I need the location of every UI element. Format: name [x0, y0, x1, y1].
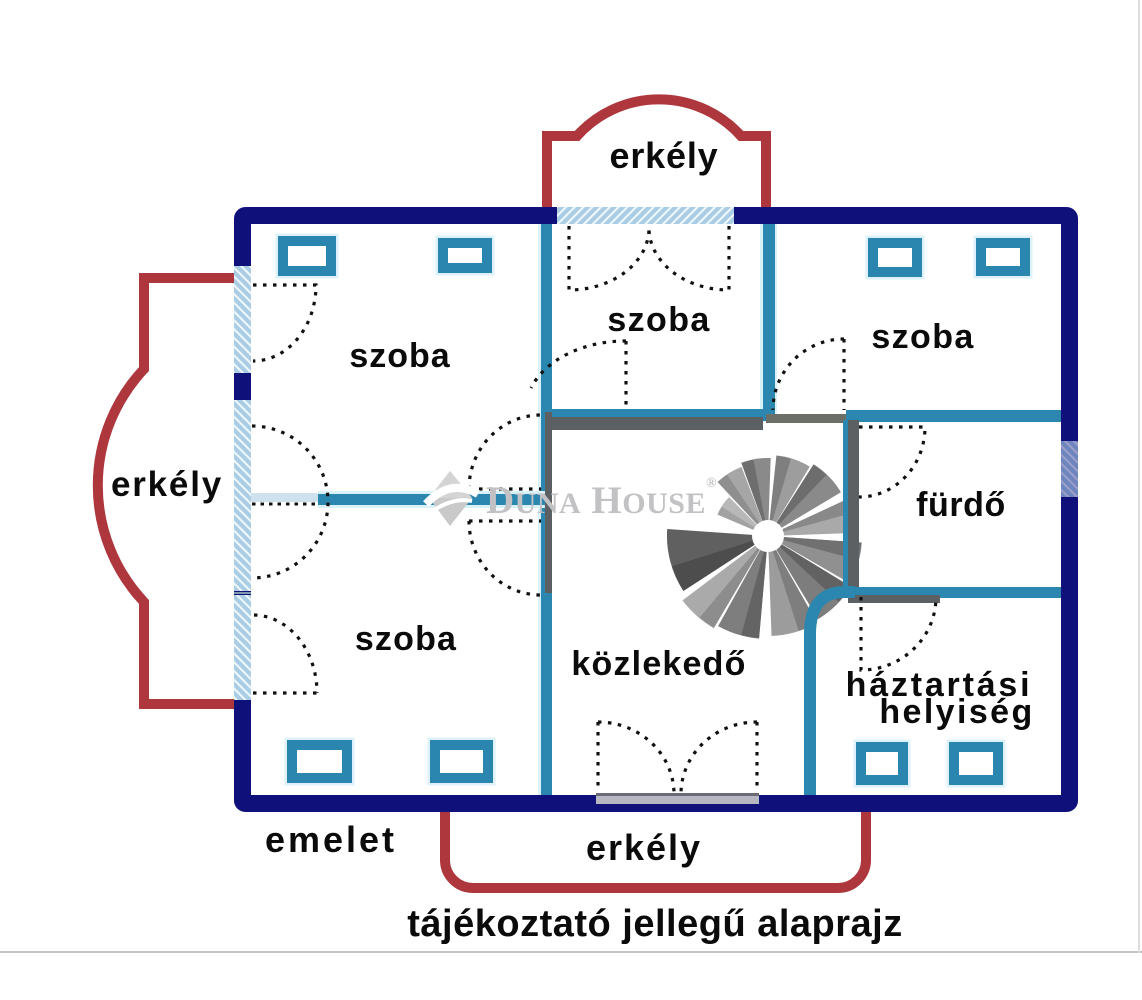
svg-text:szoba: szoba — [349, 337, 450, 375]
svg-text:közlekedő: közlekedő — [571, 645, 746, 683]
svg-text:erkély: erkély — [111, 465, 223, 504]
svg-text:szoba: szoba — [607, 301, 710, 339]
svg-text:erkély: erkély — [586, 827, 702, 868]
svg-text:szoba: szoba — [871, 318, 974, 356]
svg-text:fürdő: fürdő — [916, 486, 1006, 524]
svg-text:emelet: emelet — [265, 819, 397, 860]
svg-text:tájékoztató jellegű alaprajz: tájékoztató jellegű alaprajz — [407, 903, 902, 945]
svg-text:erkély: erkély — [610, 135, 719, 176]
svg-text:szoba: szoba — [355, 620, 457, 658]
svg-text:helyiség: helyiség — [879, 693, 1034, 731]
